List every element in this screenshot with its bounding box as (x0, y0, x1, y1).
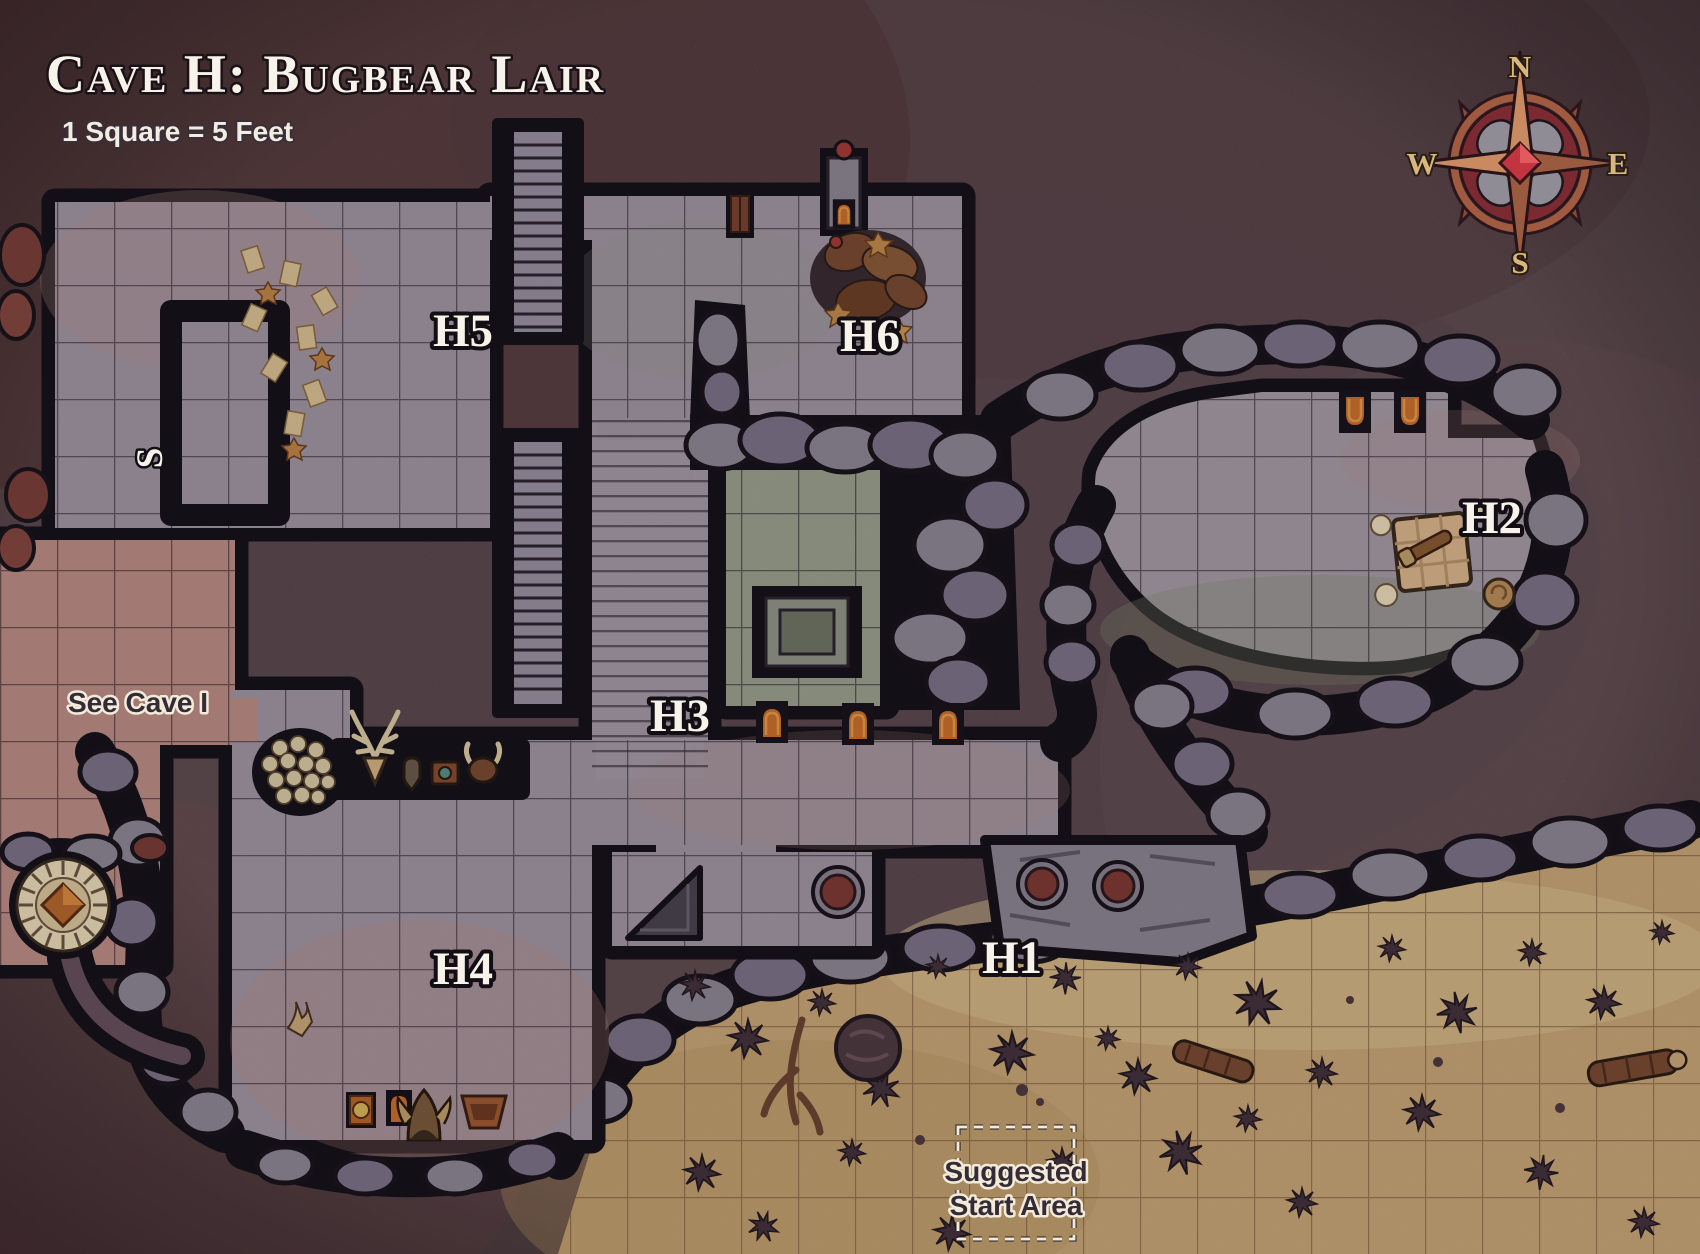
room-label-h4: H4 (433, 943, 493, 995)
room-label-h6: H6 (840, 310, 900, 362)
see-cave-label: See Cave I (68, 687, 208, 718)
compass-n-label: N (1509, 49, 1531, 84)
secret-door-label: S (130, 448, 171, 469)
room-label-h1: H1 (982, 932, 1042, 984)
compass-s-label: S (1511, 245, 1528, 280)
compass-w-label: W (1407, 146, 1438, 181)
room-label-h3: H3 (650, 690, 710, 742)
start-area-label-line2: Start Area (950, 1190, 1083, 1221)
texture-grain (0, 0, 1700, 1254)
map-title: Cave H: Bugbear Lair (46, 44, 605, 104)
room-label-h2: H2 (1462, 492, 1522, 544)
compass-e-label: E (1608, 146, 1629, 181)
map-canvas: Suggested Start Area H1 H2 H3 H4 H5 H6 S… (0, 0, 1700, 1254)
room-label-h5: H5 (433, 305, 493, 357)
start-area-label-line1: Suggested (944, 1156, 1087, 1187)
map-scale-note: 1 Square = 5 Feet (62, 116, 293, 147)
